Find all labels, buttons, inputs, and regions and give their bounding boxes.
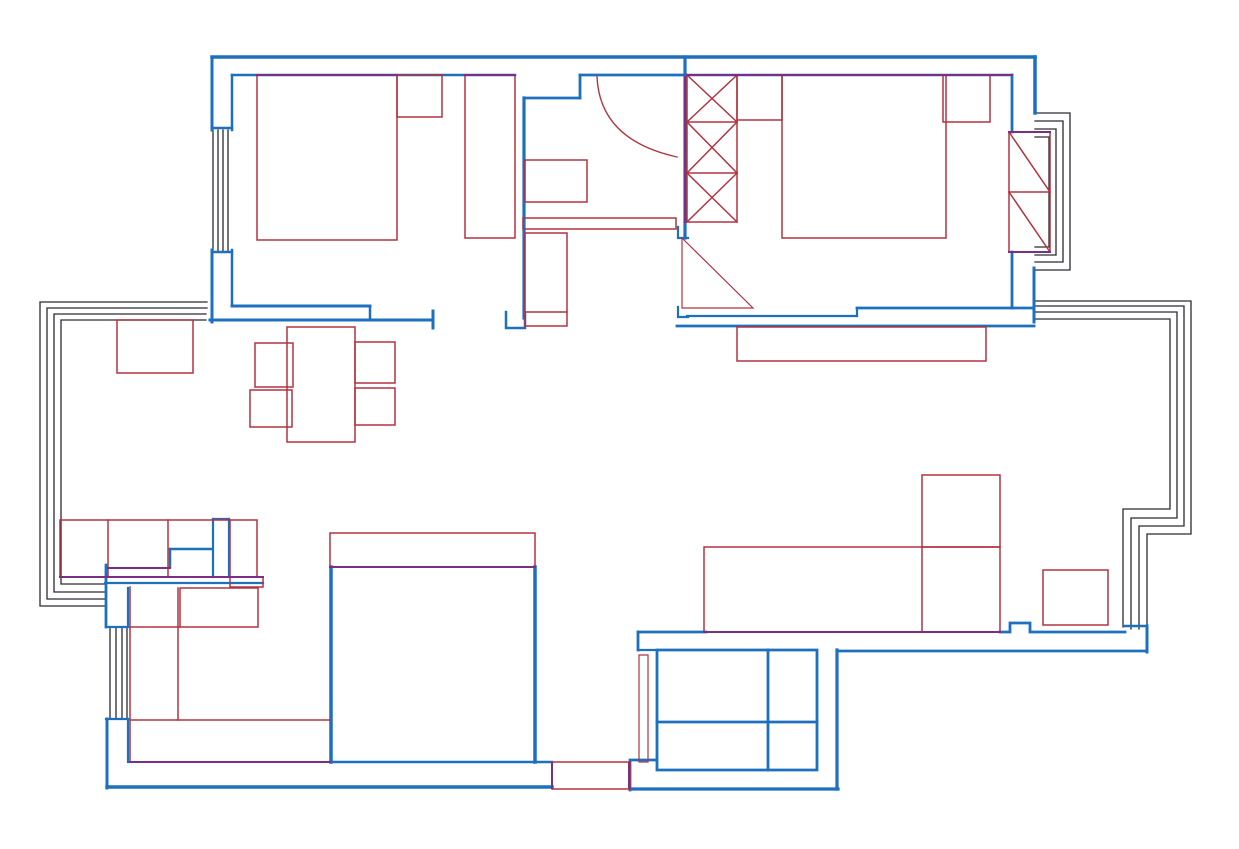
side-table <box>1043 570 1108 625</box>
bedroom2-nightstand-left <box>737 75 782 120</box>
shower-unit <box>657 650 817 770</box>
wall-layer <box>105 57 1147 790</box>
furniture-outline <box>1009 192 1050 252</box>
dining-sideboard <box>117 320 193 373</box>
hall-threshold <box>523 218 676 229</box>
living-bay-window-line <box>1034 306 1184 629</box>
bedroom2-bed <box>782 75 946 238</box>
floor-plan-canvas <box>0 0 1239 849</box>
tv-cabinet <box>737 327 986 361</box>
bar-counter <box>330 533 535 567</box>
bedroom1-wardrobe <box>465 75 515 238</box>
sofa <box>704 547 1000 632</box>
bedroom1-bed <box>257 75 397 240</box>
sofa-chaise <box>922 475 1000 547</box>
bathroom-threshold <box>552 762 630 789</box>
living-bay-window-line <box>1034 312 1177 629</box>
bedroom1-nightstand <box>397 75 442 117</box>
dining-bay-window-line <box>40 302 207 606</box>
bathroom-door-leaf <box>639 655 648 762</box>
dining-table <box>287 327 355 442</box>
hall-cabinet <box>525 160 587 202</box>
living-bay-window-line <box>1034 319 1170 627</box>
floor-plan-drawing <box>0 0 1239 849</box>
overlap-layer <box>60 75 1050 788</box>
dining-bay-window-line <box>54 314 206 592</box>
living-bay-window-line <box>1034 301 1191 629</box>
dining-chair <box>355 342 395 383</box>
wall-segment <box>630 760 657 790</box>
kitchen-stove <box>180 588 258 627</box>
wall-segment <box>506 312 525 328</box>
dining-bay-window-line <box>61 320 206 584</box>
window-layer <box>40 113 1191 719</box>
dining-chair <box>355 388 395 425</box>
dining-bay-window-line <box>47 308 207 599</box>
furniture-layer <box>60 75 1108 789</box>
dining-chair <box>250 390 292 427</box>
furniture-outline <box>1009 132 1050 192</box>
bedroom2-nightstand-right <box>943 75 990 122</box>
entry-door-arc <box>597 77 677 157</box>
door-swing-triangle <box>682 238 753 308</box>
